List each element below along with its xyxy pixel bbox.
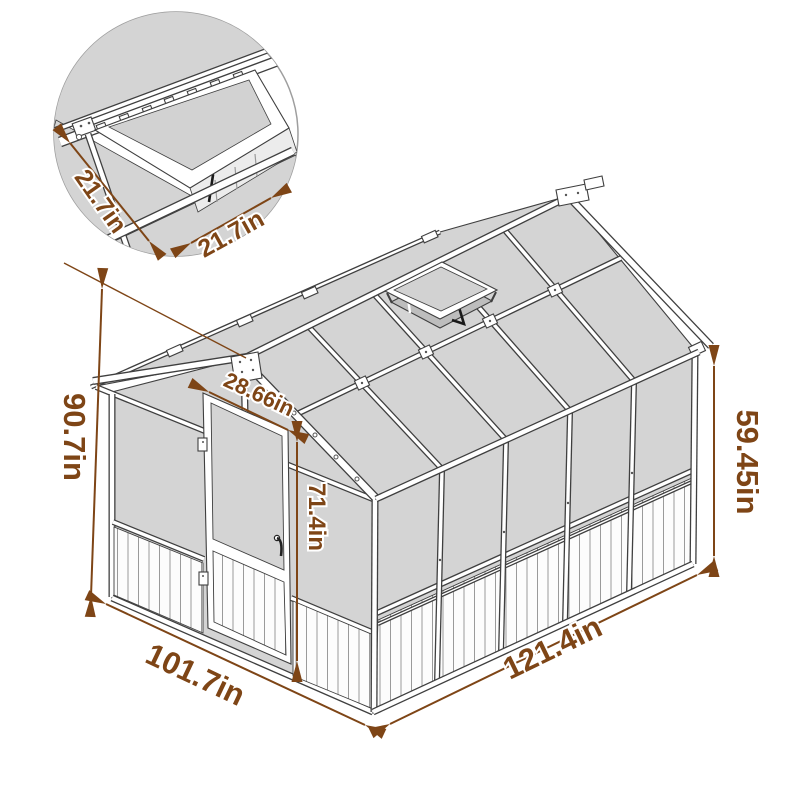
roof-vent-detail-inset: 21.7in 21.7in bbox=[30, 0, 302, 270]
side-wall-height-label: 59.45in bbox=[730, 409, 765, 514]
diagram-canvas: 90.7in 101.7in 121.4in 59.45in 71.4in 28… bbox=[0, 0, 800, 800]
greenhouse-dimension-diagram: 90.7in 101.7in 121.4in 59.45in 71.4in 28… bbox=[0, 0, 800, 800]
door-height-label: 71.4in bbox=[303, 483, 330, 551]
door-hinge-bottom bbox=[199, 572, 208, 585]
greenhouse-door bbox=[198, 393, 291, 664]
inset-leader-line bbox=[64, 263, 246, 358]
door-hinge-top bbox=[198, 438, 207, 451]
total-height-label: 90.7in bbox=[57, 393, 92, 481]
greenhouse-drawing bbox=[91, 176, 711, 713]
